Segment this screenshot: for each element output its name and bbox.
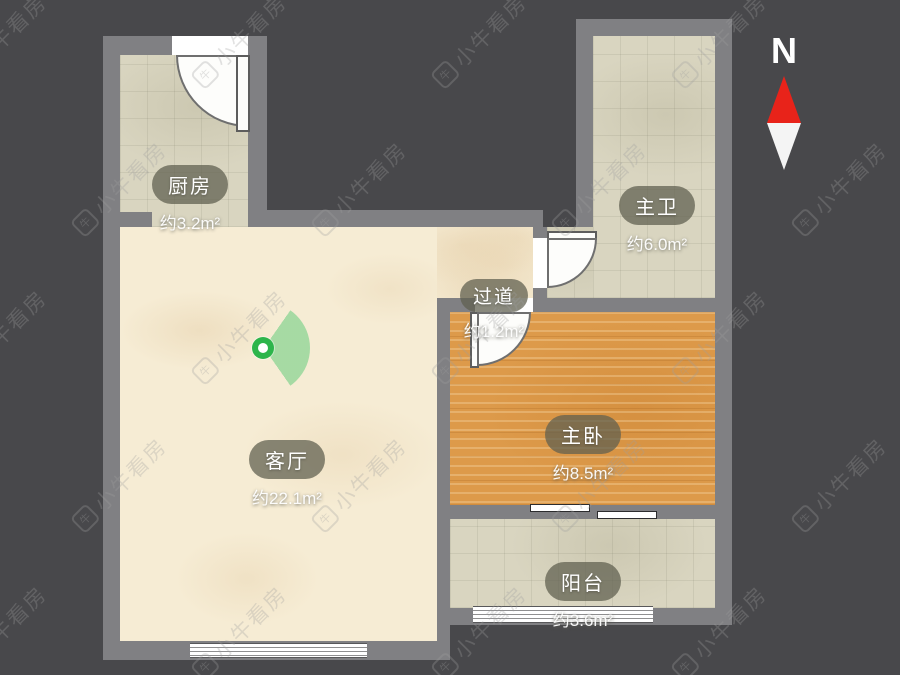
watermark-item: 牛小牛看房 [427, 0, 533, 93]
watermark-text: 小牛看房 [807, 431, 893, 517]
kitchen-right-wall [248, 36, 267, 227]
watermark-text: 小牛看房 [447, 0, 533, 73]
watermark-item: 牛小牛看房 [0, 283, 53, 389]
watermark-item: 牛小牛看房 [0, 0, 53, 93]
watermark-bull-logo-icon: 牛 [430, 59, 461, 90]
room-name-badge: 阳台 [545, 562, 621, 601]
kitchen-door-leaf [236, 55, 250, 132]
compass-needle-south [767, 123, 801, 170]
room-area-text: 约22.1m² [252, 484, 322, 509]
living-room-window [190, 643, 367, 658]
room-name-badge: 过道 [460, 279, 528, 312]
floorplan-canvas: 厨房 约3.2m² 主卫 约6.0m² 过道 约1.2m² 客厅 约22.1m²… [0, 0, 900, 675]
north-compass: N [752, 32, 816, 170]
bathroom-floor [593, 36, 715, 298]
bathroom-top-wall [576, 19, 732, 36]
room-area-text: 约1.2m² [464, 317, 524, 342]
room-name-badge: 客厅 [249, 440, 325, 479]
watermark-text: 小牛看房 [0, 579, 53, 665]
bathroom-left-wall [576, 19, 593, 227]
left-outer-wall [103, 36, 120, 660]
right-outer-wall [715, 19, 732, 625]
room-name-badge: 主卫 [619, 186, 695, 225]
kitchen-door-opening [172, 36, 248, 55]
room-label-bedroom: 主卧 约8.5m² [533, 415, 633, 484]
room-label-balcony: 阳台 约3.6m² [533, 562, 633, 631]
balcony-sliding-door-panel-left [530, 504, 590, 512]
room-area-text: 约8.5m² [553, 459, 613, 484]
watermark-bull-logo-icon: 牛 [790, 207, 821, 238]
room-label-bathroom: 主卫 约6.0m² [607, 186, 707, 255]
living-room-floor [120, 227, 437, 641]
compass-north-label: N [771, 32, 797, 70]
room-label-hallway: 过道 约1.2m² [444, 279, 544, 342]
living-top-wall [248, 210, 543, 227]
room-name-badge: 厨房 [152, 165, 228, 204]
viewpoint-dot [258, 343, 268, 353]
room-area-text: 约3.2m² [160, 209, 220, 234]
room-area-text: 约3.6m² [553, 606, 613, 631]
watermark-bull-logo-icon: 牛 [70, 207, 101, 238]
room-name-badge: 主卧 [545, 415, 621, 454]
watermark-bull-logo-icon: 牛 [790, 503, 821, 534]
viewpoint-marker[interactable] [252, 337, 274, 359]
watermark-item: 牛小牛看房 [0, 579, 53, 675]
room-label-living: 客厅 约22.1m² [237, 440, 337, 509]
watermark-text: 小牛看房 [327, 135, 413, 221]
room-label-kitchen: 厨房 约3.2m² [140, 165, 240, 234]
watermark-item: 牛小牛看房 [787, 431, 893, 537]
watermark-text: 小牛看房 [807, 135, 893, 221]
watermark-text: 小牛看房 [0, 283, 53, 369]
watermark-bull-logo-icon: 牛 [70, 503, 101, 534]
watermark-bull-logo-icon: 牛 [670, 651, 701, 675]
watermark-text: 小牛看房 [0, 0, 53, 73]
living-right-wall [437, 298, 450, 660]
balcony-sliding-door-panel-right [597, 511, 657, 519]
compass-needle-north [767, 76, 801, 123]
room-area-text: 约6.0m² [627, 230, 687, 255]
